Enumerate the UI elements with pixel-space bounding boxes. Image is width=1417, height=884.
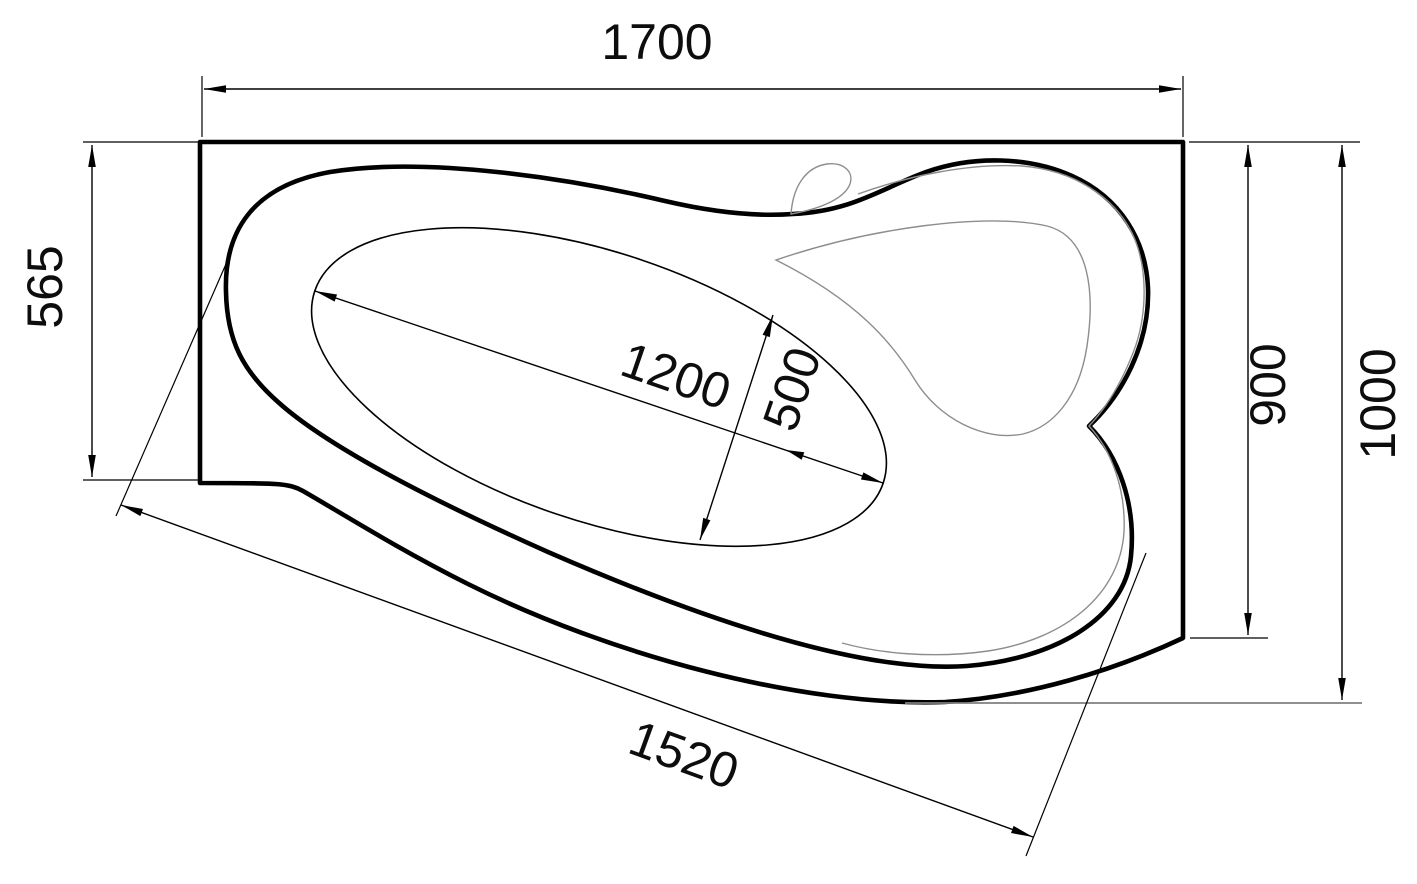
dim-label-overall-length: 1700: [601, 14, 712, 70]
ext-1520-left: [116, 264, 226, 516]
seat-contour: [776, 221, 1090, 436]
dimension-lines-group: [92, 89, 1342, 837]
tub-outline-group: [200, 142, 1183, 702]
dim-label-left-end-width: 565: [17, 245, 73, 328]
dim-label-overall-width: 1000: [1350, 348, 1406, 459]
dim-label-right-rim-width: 900: [1240, 343, 1296, 426]
dimension-labels-group: 1700 565 1200 500 900 1000 1520: [17, 14, 1406, 800]
tub-rim-outline: [226, 160, 1148, 666]
mid-arrowhead-1200: [786, 450, 804, 460]
drawing-page: 1700 565 1200 500 900 1000 1520: [0, 0, 1417, 884]
dimline-1520: [121, 505, 1033, 837]
tub-panel-outline: [200, 142, 1183, 702]
dim-label-bowl-width: 500: [752, 340, 832, 437]
dimline-500: [700, 315, 773, 540]
ext-1520-right: [1026, 553, 1146, 856]
dim-label-bowl-length: 1200: [614, 331, 737, 420]
rim-inner-contour: [842, 166, 1144, 655]
bathtub-technical-drawing: 1700 565 1200 500 900 1000 1520: [0, 0, 1417, 884]
dim-label-front-edge-length: 1520: [622, 710, 746, 801]
inner-contours-group: [776, 164, 1144, 655]
